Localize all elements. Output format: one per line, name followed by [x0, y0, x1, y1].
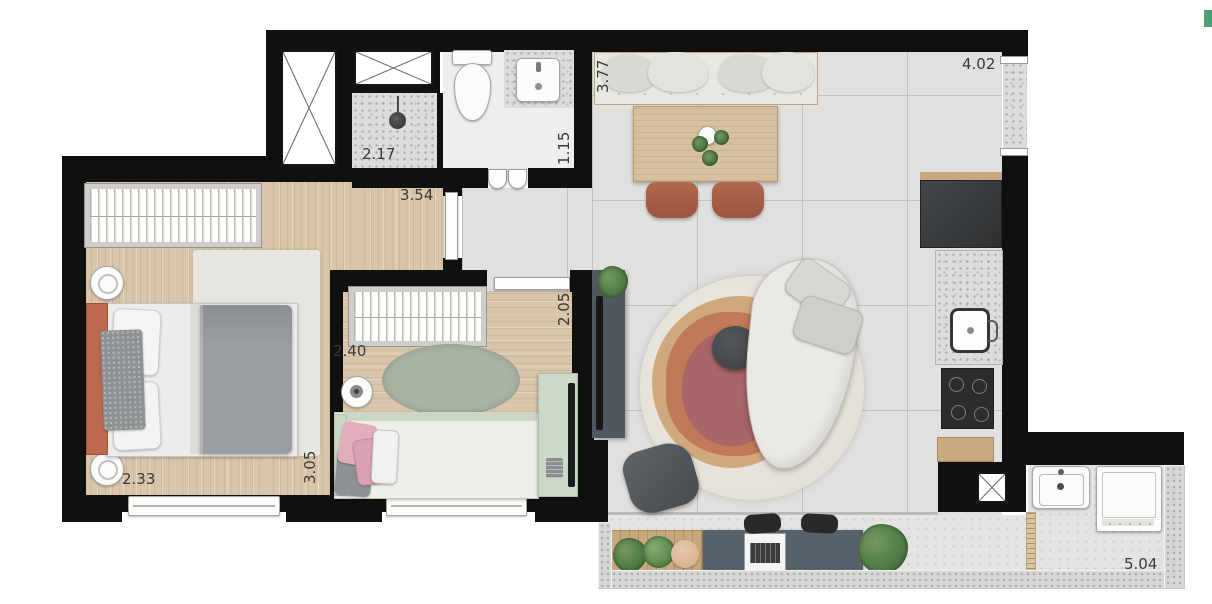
bedroom2-wardrobe	[348, 286, 487, 347]
fridge-icon	[920, 180, 1002, 248]
bedroom1-window	[128, 496, 280, 516]
bench-cushion	[648, 52, 708, 92]
burner-icon	[972, 379, 987, 394]
daybed-back-trim	[346, 412, 537, 421]
bar-stool-icon	[743, 513, 781, 535]
bathroom-door-leaf	[488, 169, 507, 189]
bathroom-door-leaf	[508, 169, 527, 189]
wall-segment	[62, 156, 268, 182]
laundry-basin	[1039, 474, 1084, 506]
wall-segment	[352, 30, 1026, 52]
wall-segment	[62, 156, 86, 522]
bench-cushion	[762, 52, 814, 92]
bed-throw-blanket	[100, 329, 145, 430]
wardrobe-rail	[90, 216, 256, 218]
drain-icon	[535, 83, 542, 90]
kitchen-wood-shelf	[937, 437, 994, 462]
dimension-label-dining: 3.77	[590, 53, 616, 99]
washer-lid	[1102, 472, 1156, 518]
dimension-label-hall: 3.54	[400, 186, 433, 204]
railing-outer-edge	[1184, 465, 1193, 588]
wall-segment	[1002, 432, 1184, 465]
nightstand-ring	[98, 460, 118, 480]
laundry-sink-icon	[1032, 466, 1090, 509]
drain-icon	[967, 327, 974, 334]
wardrobe-hangers-icon	[354, 292, 481, 341]
living-window-glass	[1003, 62, 1027, 150]
bathroom-sink-icon	[516, 58, 560, 102]
dining-chair-icon	[646, 182, 698, 218]
wall-segment	[1002, 148, 1028, 465]
wall-segment	[352, 168, 488, 188]
wall-segment	[528, 168, 592, 188]
terrace-railing-left	[598, 522, 612, 590]
dimension-label-bedroom1-width: 2.33	[122, 470, 155, 488]
nightstand-icon	[90, 452, 124, 486]
tv-icon	[596, 296, 603, 430]
duct-shaft-icon	[354, 50, 433, 86]
bedroom2-tv-icon	[568, 383, 575, 487]
partial-green-tab[interactable]	[1204, 10, 1212, 27]
fridge-counter-edge	[920, 172, 1002, 180]
dimension-label-bedroom2-width: 2.40	[333, 342, 366, 360]
window-jamb	[1000, 148, 1028, 156]
duct-shaft-icon	[977, 472, 1007, 503]
burner-icon	[949, 377, 964, 392]
dimension-label-bathroom: 1.15	[551, 125, 577, 171]
terrace-side-table-icon	[671, 540, 699, 568]
desk-object	[546, 458, 563, 478]
wall-segment	[594, 440, 608, 522]
dimension-label-shower: 2.17	[362, 145, 395, 163]
washing-machine-icon	[1096, 466, 1162, 532]
washer-controls	[1102, 519, 1154, 526]
kitchen-faucet-icon	[988, 320, 998, 342]
nightstand-icon	[90, 266, 124, 300]
floor-plan-canvas: 2.17 1.15 3.54 3.77 4.02 2.05 2.40 2.33 …	[0, 0, 1212, 604]
window-jamb	[1000, 56, 1028, 64]
faucet-icon	[536, 62, 541, 72]
stool-icon	[341, 376, 373, 408]
window-mullion	[133, 505, 275, 507]
bedroom1-wardrobe	[84, 183, 262, 248]
dimension-label-bedroom1-depth: 3.05	[297, 444, 323, 490]
dimension-label-living: 4.02	[962, 55, 995, 73]
drying-rack-icon	[1026, 512, 1036, 575]
shower-head-icon	[389, 112, 406, 129]
faucet-icon	[1058, 469, 1064, 475]
daybed-pillow-lumbar	[371, 429, 400, 484]
wardrobe-rail	[354, 317, 481, 319]
grill-icon	[744, 533, 786, 574]
railing-outer-edge	[598, 588, 1184, 595]
dimension-label-bedroom2-depth: 2.05	[551, 286, 577, 332]
bedroom1-door-leaf	[445, 192, 458, 260]
dimension-label-terrace: 5.04	[1124, 555, 1157, 573]
grill-grate	[750, 543, 780, 563]
drain-icon	[1057, 483, 1064, 490]
wardrobe-hangers-icon	[90, 189, 256, 242]
bar-stool-icon	[801, 513, 839, 534]
burner-icon	[951, 405, 966, 420]
burner-icon	[974, 407, 989, 422]
terrace-railing-bottom	[598, 570, 1166, 590]
cooktop-icon	[941, 368, 994, 429]
wall-shower-partition	[437, 93, 443, 168]
bedroom2-oval-rug	[382, 344, 520, 416]
nightstand-ring	[98, 274, 118, 294]
dining-chair-icon	[712, 182, 764, 218]
duct-shaft-icon	[281, 50, 337, 166]
bed-duvet	[200, 305, 292, 454]
window-mullion	[391, 505, 522, 507]
bedroom2-window	[386, 496, 527, 516]
kitchen-sink-icon	[950, 308, 990, 353]
stool-dot	[354, 389, 359, 394]
terrace-railing-right	[1164, 465, 1186, 590]
